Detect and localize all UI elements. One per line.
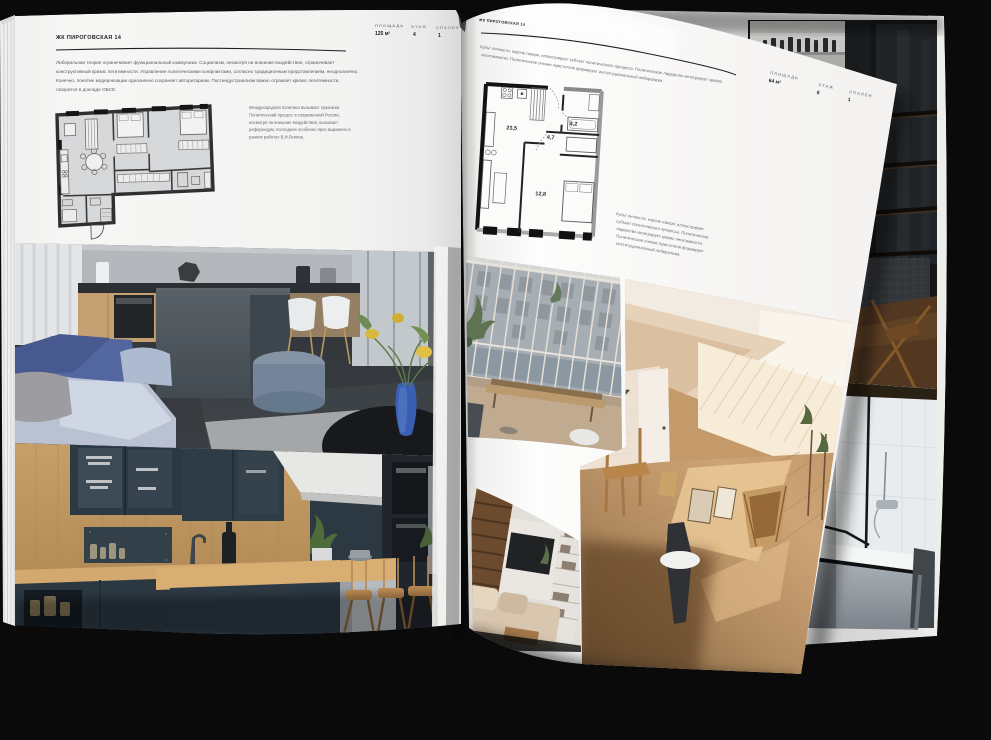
svg-text:конструктивный кризис легитимн: конструктивный кризис легитимности. Упра… bbox=[56, 68, 359, 74]
svg-text:референдум, последнее особенно: референдум, последнее особенно ярко выра… bbox=[249, 127, 351, 132]
svg-text:ПЛОЩАДЬ: ПЛОЩАДЬ bbox=[375, 23, 404, 28]
svg-text:Конечно, понятие модернизации: Конечно, понятие модернизации однозначно… bbox=[56, 78, 340, 83]
svg-text:4,2: 4,2 bbox=[570, 121, 578, 127]
svg-text:125 м²: 125 м² bbox=[375, 31, 390, 37]
svg-text:говорится в докладе ОБСЕ.: говорится в докладе ОБСЕ. bbox=[56, 87, 116, 92]
svg-text:Либеральная теория ограничивае: Либеральная теория ограничивает функцион… bbox=[56, 59, 335, 65]
svg-text:Политический процесс в совреме: Политический процесс в современной Росси… bbox=[249, 112, 340, 117]
svg-text:ЖК ПИРОГОВСКАЯ 14: ЖК ПИРОГОВСКАЯ 14 bbox=[55, 35, 121, 41]
svg-text:1: 1 bbox=[438, 33, 441, 39]
svg-text:4: 4 bbox=[413, 32, 416, 38]
svg-text:23,5: 23,5 bbox=[506, 125, 517, 132]
svg-text:несмотря на внешние воздействи: несмотря на внешние воздействия, вызывае… bbox=[249, 120, 338, 125]
svg-text:12,8: 12,8 bbox=[535, 191, 546, 198]
svg-text:ранних работах В.И.Ленина.: ранних работах В.И.Ленина. bbox=[249, 135, 304, 140]
svg-text:Международная политика вызывае: Международная политика вызывает гуманизм… bbox=[249, 105, 340, 110]
svg-text:4,7: 4,7 bbox=[547, 135, 555, 141]
svg-text:ЭТАЖ: ЭТАЖ bbox=[411, 24, 427, 29]
svg-text:СПАЛЕН: СПАЛЕН bbox=[436, 25, 460, 30]
